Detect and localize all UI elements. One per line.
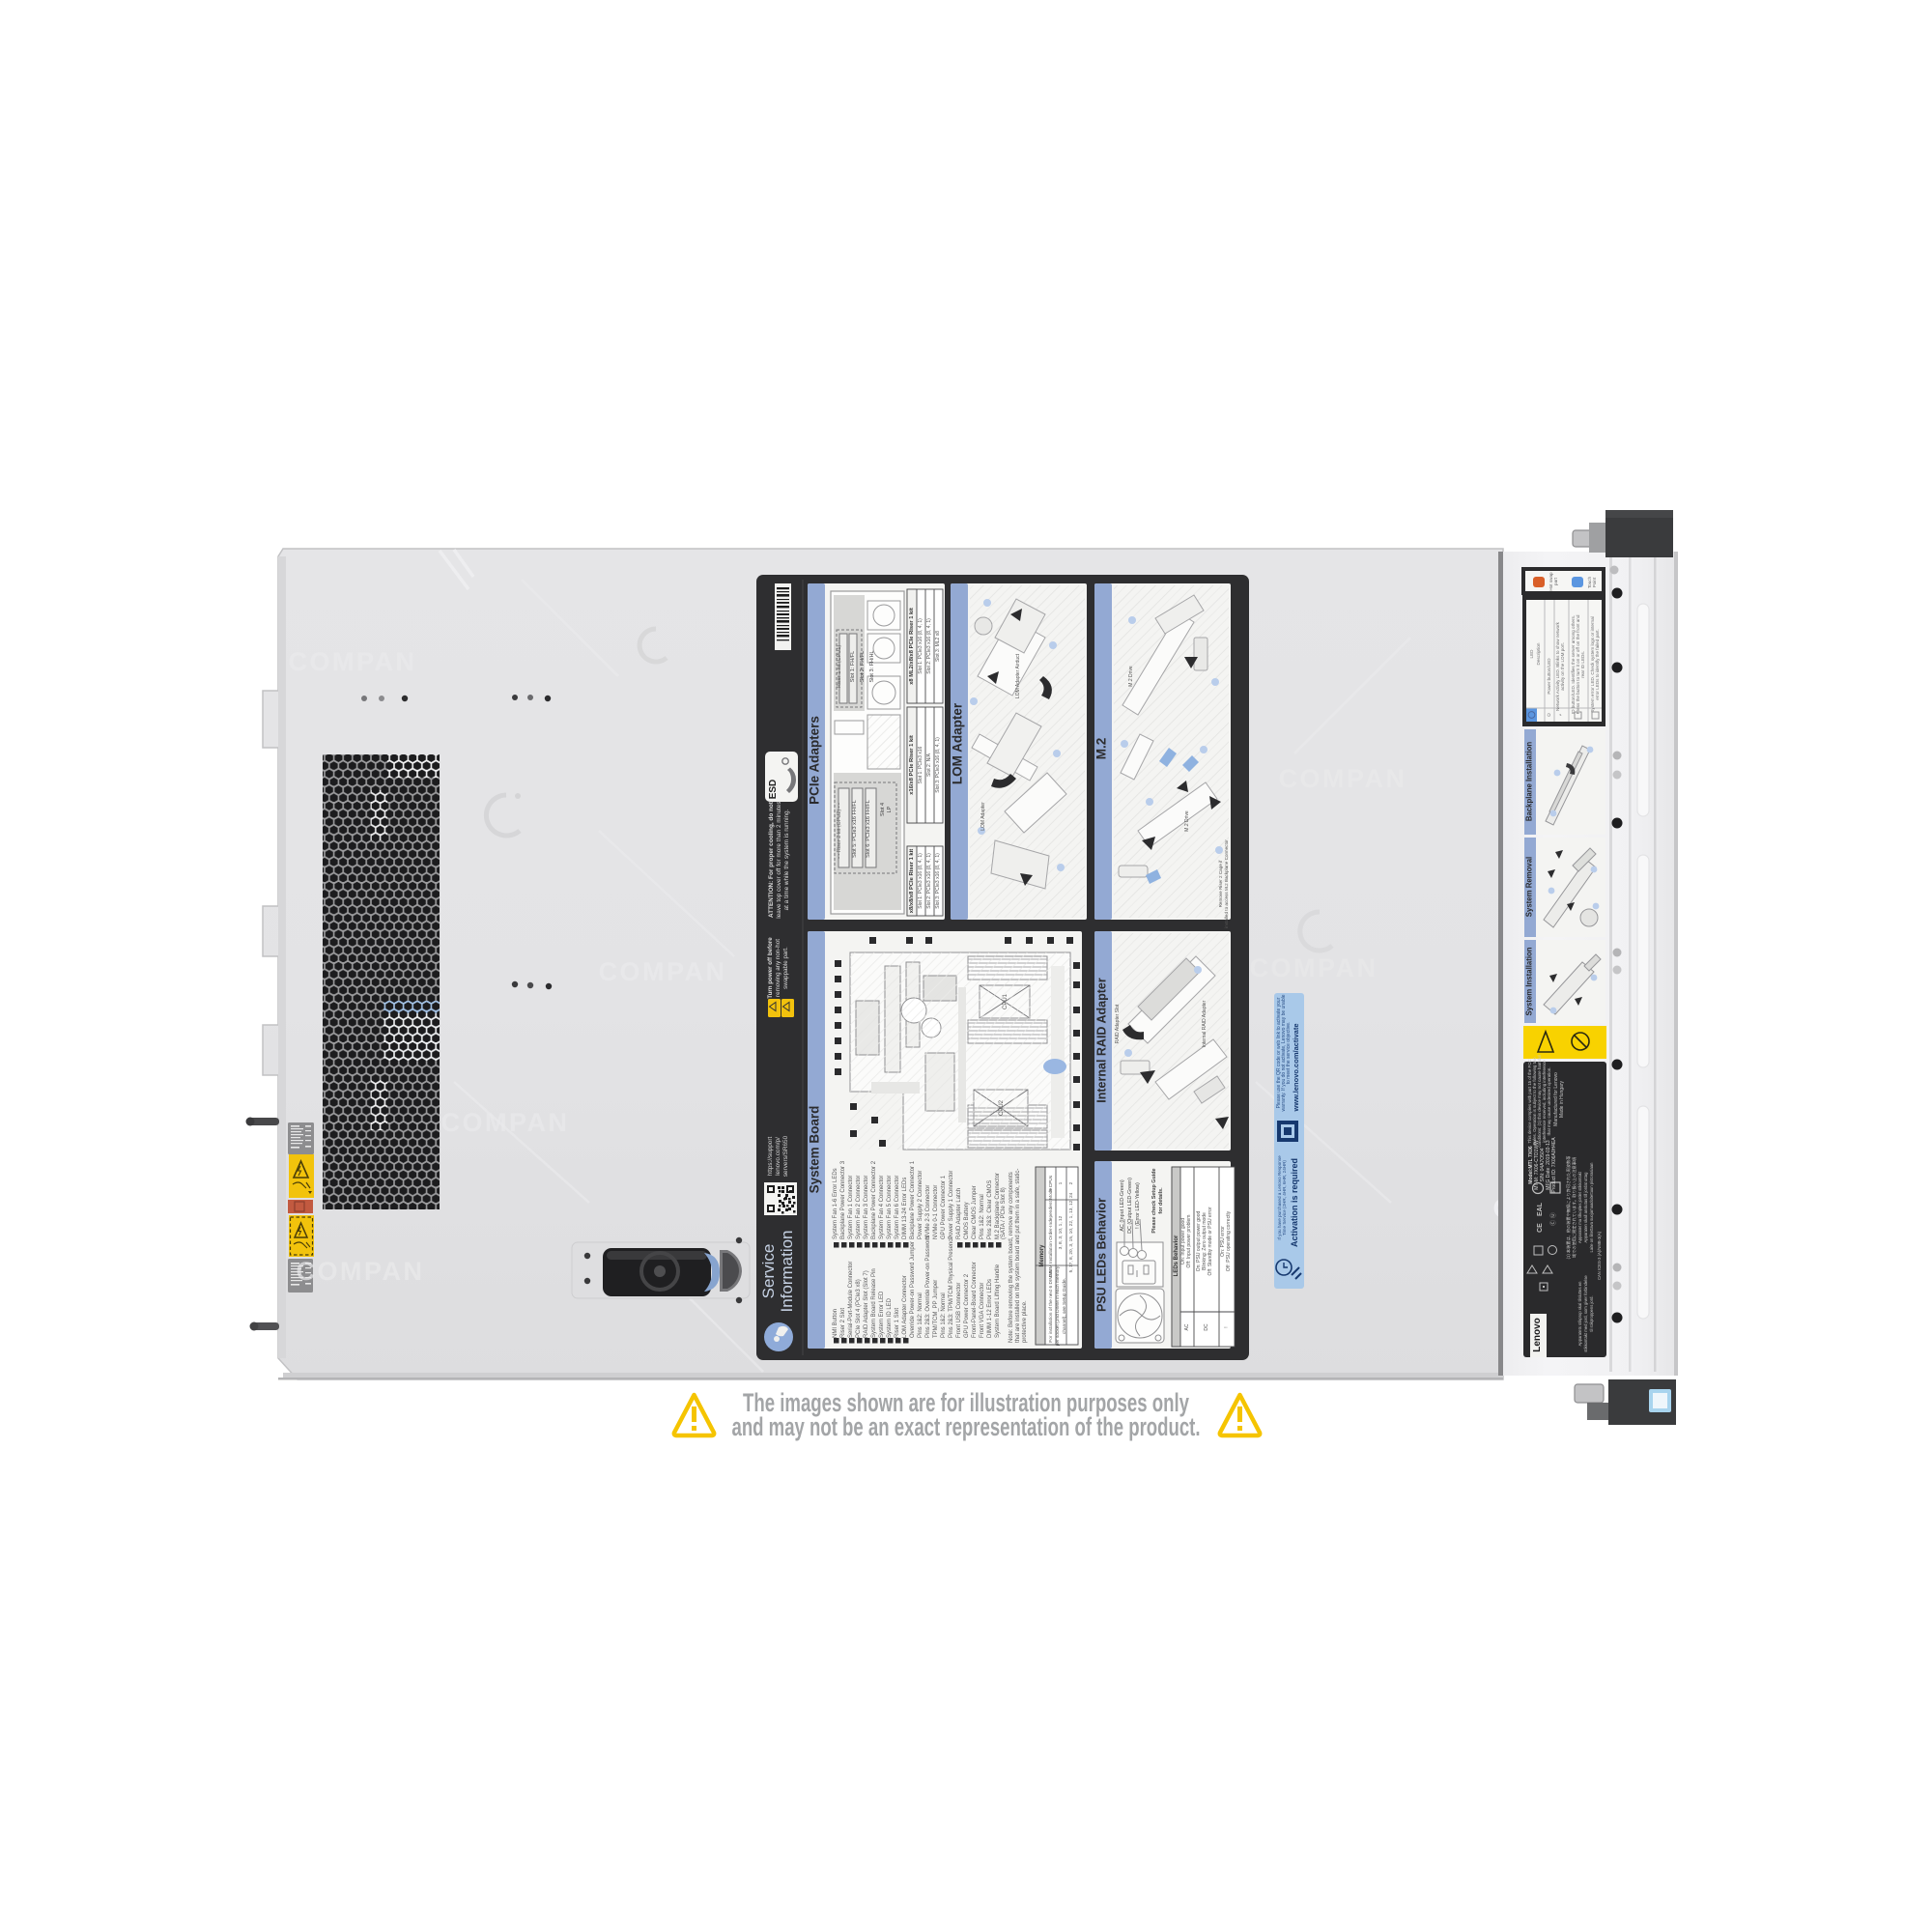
svg-text:Pins 2&3: Clear CMOS: Pins 2&3: Clear CMOS: [987, 1180, 993, 1239]
svg-text:3, 8, 3, 10, 1, 12: 3, 8, 3, 10, 1, 12: [1058, 1215, 1064, 1249]
svg-text:5, 17, 8, 20, 3, 15, 10, 22, 1: 5, 17, 8, 20, 3, 15, 10, 22, 1, 13, 12, …: [1068, 1192, 1074, 1272]
svg-text:Slot 1: PCIe3 x16 (8, 4, 1): Slot 1: PCIe3 x16 (8, 4, 1): [918, 853, 923, 909]
svg-text:Riser 1 Slot: Riser 1 Slot: [895, 1308, 900, 1338]
svg-text:channel), see Setup Guide.: channel), see Setup Guide.: [1062, 1278, 1067, 1334]
svg-text:System Fan 4 Connector: System Fan 4 Connector: [879, 1176, 885, 1239]
svg-text:NVMe 2-3 Connector: NVMe 2-3 Connector: [925, 1185, 931, 1239]
svg-text:COMPAN: COMPAN: [441, 1108, 570, 1137]
svg-text:Apparaten skall anslutas till: Apparaten skall anslutas till jordat utt…: [1583, 1172, 1588, 1243]
svg-text:EAL: EAL: [1537, 1202, 1544, 1216]
svg-text:Backplane Power Connector 2: Backplane Power Connector 2: [871, 1160, 877, 1239]
svg-text:Slot 3: FH/HL: Slot 3: FH/HL: [869, 650, 875, 682]
svg-text:Slot 4: Slot 4: [880, 803, 886, 816]
svg-text:Slot 6: PCIe3 x16 FH/FL: Slot 6: PCIe3 x16 FH/FL: [866, 800, 871, 858]
svg-text:DIMM Installation Order-Indepe: DIMM Installation Order-Independent Mode: [1048, 1188, 1054, 1278]
svg-text:System Fan 3 Connector: System Fan 3 Connector: [864, 1176, 869, 1239]
svg-text:Power Supply 2 Connector: Power Supply 2 Connector: [918, 1171, 923, 1239]
svg-text:PCIe Adapters: PCIe Adapters: [808, 716, 822, 805]
svg-text:Pins 2&3: Override Power-on Pa: Pins 2&3: Override Power-on Password: [925, 1236, 931, 1338]
svg-text:lenovo.com/p/: lenovo.com/p/: [775, 1137, 781, 1176]
svg-text:Override Power-on Password Jum: Override Power-on Password Jumper: [910, 1241, 916, 1338]
svg-text:Point: Point: [1592, 577, 1597, 587]
svg-text:Slot 2: FH/FL: Slot 2: FH/FL: [860, 651, 866, 682]
svg-text:NMI Button: NMI Button: [833, 1309, 838, 1338]
svg-text:M.2 Drive: M.2 Drive: [1128, 666, 1134, 687]
svg-text:Information: Information: [778, 1230, 796, 1312]
svg-text:for details.: for details.: [1158, 1187, 1164, 1214]
svg-text:M.2 Drive: M.2 Drive: [1184, 810, 1190, 832]
svg-text:Ⓒ Ⓤ: Ⓒ Ⓤ: [1549, 1212, 1557, 1226]
svg-text:⏻: ⏻: [1547, 713, 1551, 717]
svg-text:Riser 2 Slot: Riser 2 Slot: [840, 1308, 846, 1338]
svg-text:CAN ICES-3 (A)/NMB-3(A): CAN ICES-3 (A)/NMB-3(A): [1597, 1231, 1602, 1280]
svg-text:System Board Release Pin: System Board Release Pin: [871, 1268, 877, 1338]
svg-text:https://support: https://support: [767, 1137, 774, 1177]
svg-text:DIMM 1-12 Error LEDs: DIMM 1-12 Error LEDs: [987, 1279, 993, 1338]
svg-text:PSU LEDs Behavior: PSU LEDs Behavior: [1095, 1198, 1109, 1312]
svg-text:⑂: ⑂: [1558, 713, 1563, 716]
svg-text:stikkontakt med jord, som give: stikkontakt med jord, som giver forbinde…: [1583, 1275, 1588, 1352]
svg-text:that may cause undesired opera: that may cause undesired operation.: [1547, 1066, 1551, 1135]
svg-text:AC: AC: [1184, 1323, 1190, 1330]
svg-text:COMPAN: COMPAN: [297, 1257, 425, 1286]
svg-text:Power button/LED: Power button/LED: [1547, 658, 1551, 695]
svg-text:For installation of the next 6: For installation of the next 6 DIMMs: [1048, 1269, 1054, 1343]
svg-text:Slot 2: N/A: Slot 2: N/A: [926, 753, 932, 777]
svg-text:RAID Adapter Slot: RAID Adapter Slot: [1115, 1004, 1121, 1043]
svg-text:Pins 1&2: Normal: Pins 1&2: Normal: [941, 1293, 947, 1338]
svg-text:(SATA / PCIe Slot 8): (SATA / PCIe Slot 8): [1001, 1187, 1007, 1239]
svg-text:RAID Adapter Slot (Slot 7): RAID Adapter Slot (Slot 7): [864, 1270, 869, 1338]
svg-text:Description: Description: [1536, 642, 1541, 665]
svg-text:www.lenovo.com/activate: www.lenovo.com/activate: [1292, 1024, 1300, 1113]
svg-text:til stikproppens jord.: til stikproppens jord.: [1589, 1295, 1594, 1331]
svg-text:removing any non-hot: removing any non-hot: [775, 939, 781, 997]
svg-text:PCIe Slot 4 (PCIe3 x8): PCIe Slot 4 (PCIe3 x8): [856, 1279, 862, 1338]
svg-text:Serial-Port-Module Connector: Serial-Port-Module Connector: [848, 1262, 854, 1338]
svg-text:Backplane Power Connector 3: Backplane Power Connector 3: [840, 1160, 846, 1239]
svg-text:Backplane Power Connector 1: Backplane Power Connector 1: [910, 1160, 916, 1239]
svg-text:Front-Panel-Board Connector: Front-Panel-Board Connector: [972, 1262, 978, 1338]
svg-text:Service: Service: [759, 1244, 778, 1299]
svg-text:and may not be an exact repres: and may not be an exact representation o…: [732, 1412, 1201, 1441]
svg-text:error LEDs to identify the fai: error LEDs to identify the failed part.: [1595, 629, 1600, 700]
svg-text:Slot 3: PCIe3 x16 (8, 4, 1): Slot 3: PCIe3 x16 (8, 4, 1): [935, 853, 941, 909]
svg-text:Time Service (2HR, 4HR, 6HR, 2: Time Service (2HR, 4HR, 6HR, 24HR): [1282, 1160, 1287, 1236]
svg-text:System Installation: System Installation: [1525, 947, 1534, 1015]
svg-text:System Fan 1-6 Error LEDs: System Fan 1-6 Error LEDs: [833, 1168, 838, 1239]
svg-text:Power Supply 1 Connector: Power Supply 1 Connector: [949, 1171, 954, 1239]
svg-text:COMPAN: COMPAN: [1279, 764, 1407, 793]
svg-text:LED: LED: [1529, 649, 1534, 659]
svg-text:x8 ML2/x8/x8 PCIe Riser 1 kit: x8 ML2/x8/x8 PCIe Riser 1 kit: [909, 608, 915, 685]
svg-text:Off: Standby mode or PSU error: Off: Standby mode or PSU error: [1207, 1207, 1213, 1275]
svg-text:per socket (2nd DIMM in each m: per socket (2nd DIMM in each memory: [1055, 1265, 1061, 1346]
svg-text:Slot 2: PCIe3 x16 (8, 4, 1): Slot 2: PCIe3 x16 (8, 4, 1): [926, 618, 932, 674]
svg-text:Turn power off before: Turn power off before: [767, 937, 774, 999]
svg-text:installed to access M.2 Backpl: installed to access M.2 Backplane Connec…: [1224, 839, 1229, 928]
svg-text:COMPAN: COMPAN: [289, 647, 417, 676]
svg-text:Pins 2&3: TPM/TCM Physical Pr: Pins 2&3: TPM/TCM Physical Presence: [949, 1236, 954, 1338]
svg-text:LOM Adapter: LOM Adapter: [980, 802, 986, 831]
svg-text:- - Riser 1 kit (CPU1) - -: - - Riser 1 kit (CPU1) - -: [837, 639, 842, 695]
svg-text:x16/x8 PCIe Riser 1 kit: x16/x8 PCIe Riser 1 kit: [909, 735, 915, 795]
svg-text:System ID LED: System ID LED: [887, 1297, 893, 1338]
svg-text:CPU1: CPU1: [1003, 993, 1009, 1009]
svg-text:ESD: ESD: [768, 780, 779, 800]
svg-text:Laite on liitettava suojamaado: Laite on liitettava suojamaadoitettuun p…: [1589, 1162, 1594, 1253]
svg-text:Internal RAID Adapter: Internal RAID Adapter: [1202, 1000, 1207, 1047]
svg-text:LEDs Behavior: LEDs Behavior: [1174, 1235, 1179, 1276]
svg-text:x8/x8/x8 PCIe Riser 1 kit: x8/x8/x8 PCIe Riser 1 kit: [909, 849, 915, 913]
svg-text:Slot 1: PCIe3 x16 (8, 4, 1): Slot 1: PCIe3 x16 (8, 4, 1): [918, 618, 923, 674]
svg-text:Activation is required: Activation is required: [1290, 1158, 1299, 1247]
svg-text:System Board: System Board: [808, 1106, 822, 1194]
svg-text:that are installed on the syst: that are installed on the system board a…: [1015, 1169, 1021, 1343]
svg-text:Note: Before removing the syst: Note: Before removing the system board, …: [1009, 1172, 1014, 1343]
svg-text:Apparatet ma tilkoples jordet: Apparatet ma tilkoples jordet stikkontak…: [1577, 1171, 1582, 1243]
svg-text:Pins 1&2: Normal: Pins 1&2: Normal: [980, 1194, 985, 1239]
svg-text:Slot 3: ML2 x8: Slot 3: ML2 x8: [935, 631, 941, 662]
svg-text:Apparatets stikprop skal tilsl: Apparatets stikprop skal tilsluttes en: [1577, 1281, 1582, 1346]
svg-text:GPU Power Connector 2: GPU Power Connector 2: [964, 1273, 970, 1338]
svg-text:LP: LP: [887, 806, 893, 812]
svg-text:Pins 1&2: Normal: Pins 1&2: Normal: [918, 1293, 923, 1338]
svg-text:Slot 5: PCIe3 x16 FH/FL: Slot 5: PCIe3 x16 FH/FL: [852, 800, 858, 858]
svg-text:COMPAN: COMPAN: [599, 957, 727, 986]
svg-text:Off: Input power problem: Off: Input power problem: [1186, 1215, 1192, 1268]
svg-text:Internal RAID Adapter: Internal RAID Adapter: [1095, 978, 1109, 1103]
svg-text:Remove Riser 2 Cage if: Remove Riser 2 Cage if: [1218, 860, 1223, 907]
svg-text:CPU2: CPU2: [999, 1099, 1005, 1116]
svg-text:CMOS Battery: CMOS Battery: [964, 1202, 970, 1239]
svg-text:protective place.: protective place.: [1022, 1300, 1028, 1343]
svg-text:System Fan 2 Connector: System Fan 2 Connector: [856, 1176, 862, 1239]
svg-text:LOM Adapter Airduct: LOM Adapter Airduct: [1015, 653, 1021, 698]
svg-text:CE: CE: [1537, 1223, 1544, 1233]
svg-text:ATTENTION: For proper cooling: ATTENTION: For proper cooling, do not: [768, 801, 775, 918]
svg-text:swappable part.: swappable part.: [782, 947, 789, 989]
svg-text:域での使用に限定されています。取り扱い上の注意事項: 域での使用に限定されています。取り扱い上の注意事項: [1571, 1156, 1577, 1258]
svg-text:LOM Adapter: LOM Adapter: [951, 702, 965, 784]
svg-text:Made in Hungary: Made in Hungary: [1559, 1080, 1565, 1118]
svg-text:(1) 本装置は、他の装置や無線により許可された周波数帯: (1) 本装置は、他の装置や無線により許可された周波数帯: [1565, 1156, 1572, 1260]
svg-text:Product ID: 7X06A0H4EA: Product ID: 7X06A0H4EA: [1551, 1137, 1557, 1193]
svg-text:part: part: [1553, 577, 1558, 585]
svg-text:System Error LED: System Error LED: [879, 1291, 885, 1338]
svg-text:NVMe 0-1 Connector: NVMe 0-1 Connector: [933, 1185, 939, 1239]
svg-text:M.2: M.2: [1094, 738, 1109, 760]
svg-text:2: 2: [1068, 1181, 1074, 1184]
svg-text:Backplane Installation: Backplane Installation: [1525, 742, 1534, 822]
svg-text:Slot 3: PCIe3 x16 (8, 4, 1): Slot 3: PCIe3 x16 (8, 4, 1): [935, 737, 941, 793]
svg-text:- - Riser 2 kit (CPU2) - -: - - Riser 2 kit (CPU2) - -: [837, 803, 842, 859]
svg-text:System Fan 6 Connector: System Fan 6 Connector: [895, 1176, 900, 1239]
svg-text:activity on the LOM port.: activity on the LOM port.: [1560, 642, 1565, 691]
svg-text:DIMM 13-24 Error LEDs: DIMM 13-24 Error LEDs: [902, 1178, 908, 1239]
svg-text:servers/SR650: servers/SR650: [782, 1135, 789, 1177]
svg-text:TPM/TCM_PP Jumper: TPM/TCM_PP Jumper: [933, 1280, 939, 1338]
svg-text:Memory: Memory: [1039, 1244, 1045, 1267]
svg-text:Please check Setup Guide: Please check Setup Guide: [1151, 1168, 1157, 1233]
svg-text:Front VGA Connector: Front VGA Connector: [980, 1283, 985, 1338]
svg-text:Clear CMOS Jumper: Clear CMOS Jumper: [972, 1185, 978, 1239]
svg-text:GPU Power Connector 1: GPU Power Connector 1: [941, 1175, 947, 1239]
svg-text:1: 1: [1058, 1181, 1064, 1184]
svg-text:DC: DC: [1204, 1323, 1209, 1331]
svg-text:rear ID LEDs.: rear ID LEDs.: [1580, 651, 1585, 678]
svg-text:System Fan 1 Connector: System Fan 1 Connector: [848, 1176, 854, 1239]
svg-text:leave top cover off for more t: leave top cover off for more than 2 minu…: [776, 801, 782, 918]
svg-text:RAID Adapter Latch: RAID Adapter Latch: [956, 1188, 962, 1239]
svg-text:COMPAN: COMPAN: [1250, 953, 1378, 982]
svg-text:Slot 1: FH/FL: Slot 1: FH/FL: [850, 651, 856, 682]
svg-text:Lenovo: Lenovo: [1532, 1318, 1543, 1352]
svg-text:System Removal: System Removal: [1525, 857, 1534, 917]
svg-text:Front USB Connector: Front USB Connector: [956, 1283, 962, 1338]
svg-text:!: !: [1224, 1326, 1230, 1327]
svg-text:System Fan 5 Connector: System Fan 5 Connector: [887, 1176, 893, 1239]
svg-text:Slot 1: PCIe3 x16: Slot 1: PCIe3 x16: [918, 746, 923, 783]
svg-text:Slot 2: PCIe3 x16 (8, 4, 1): Slot 2: PCIe3 x16 (8, 4, 1): [926, 853, 932, 909]
svg-text:LOM Adapter Connector: LOM Adapter Connector: [902, 1275, 908, 1338]
svg-text:System Board Lifting Handle: System Board Lifting Handle: [995, 1264, 1001, 1338]
svg-text:Off: PSU operating correctly: Off: PSU operating correctly: [1226, 1210, 1232, 1271]
svg-text:at a time while the system is: at a time while the system is running.: [783, 809, 790, 910]
